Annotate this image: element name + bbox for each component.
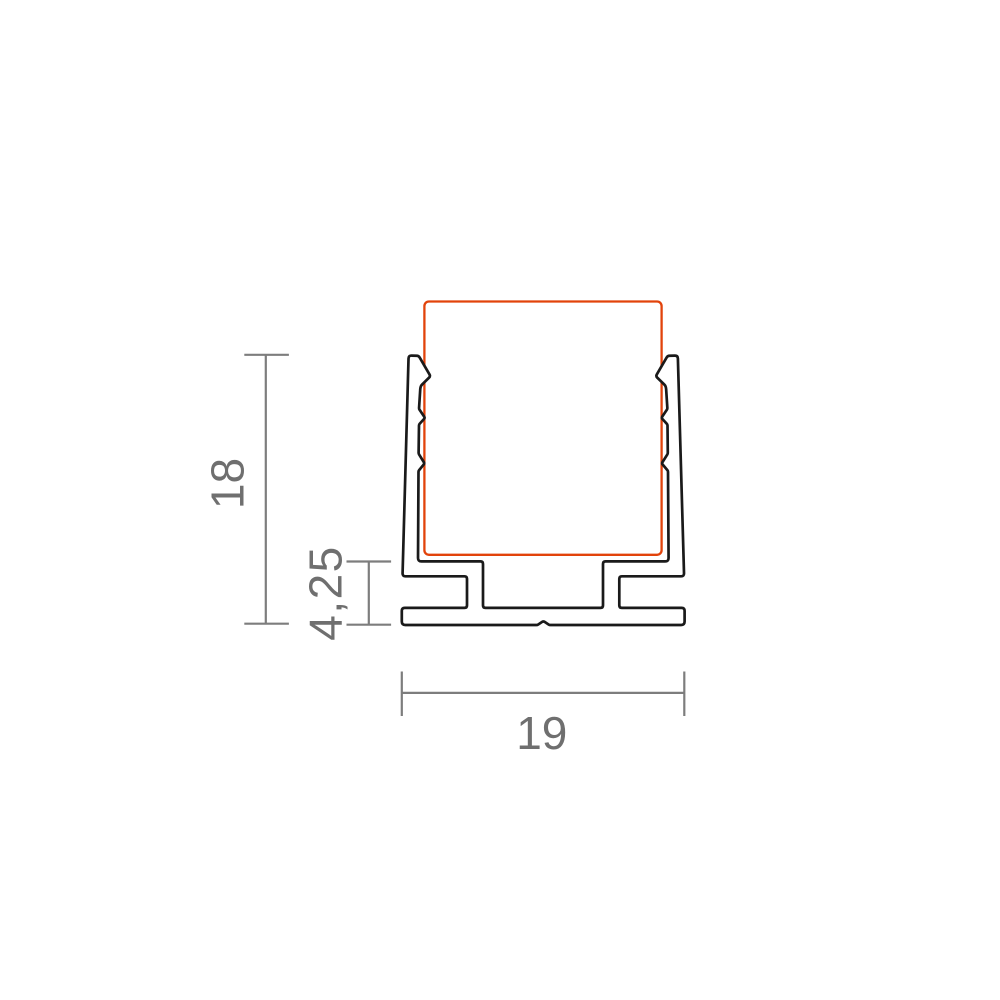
- svg-text:19: 19: [516, 707, 567, 759]
- svg-text:4,25: 4,25: [300, 545, 352, 641]
- svg-text:18: 18: [202, 458, 254, 509]
